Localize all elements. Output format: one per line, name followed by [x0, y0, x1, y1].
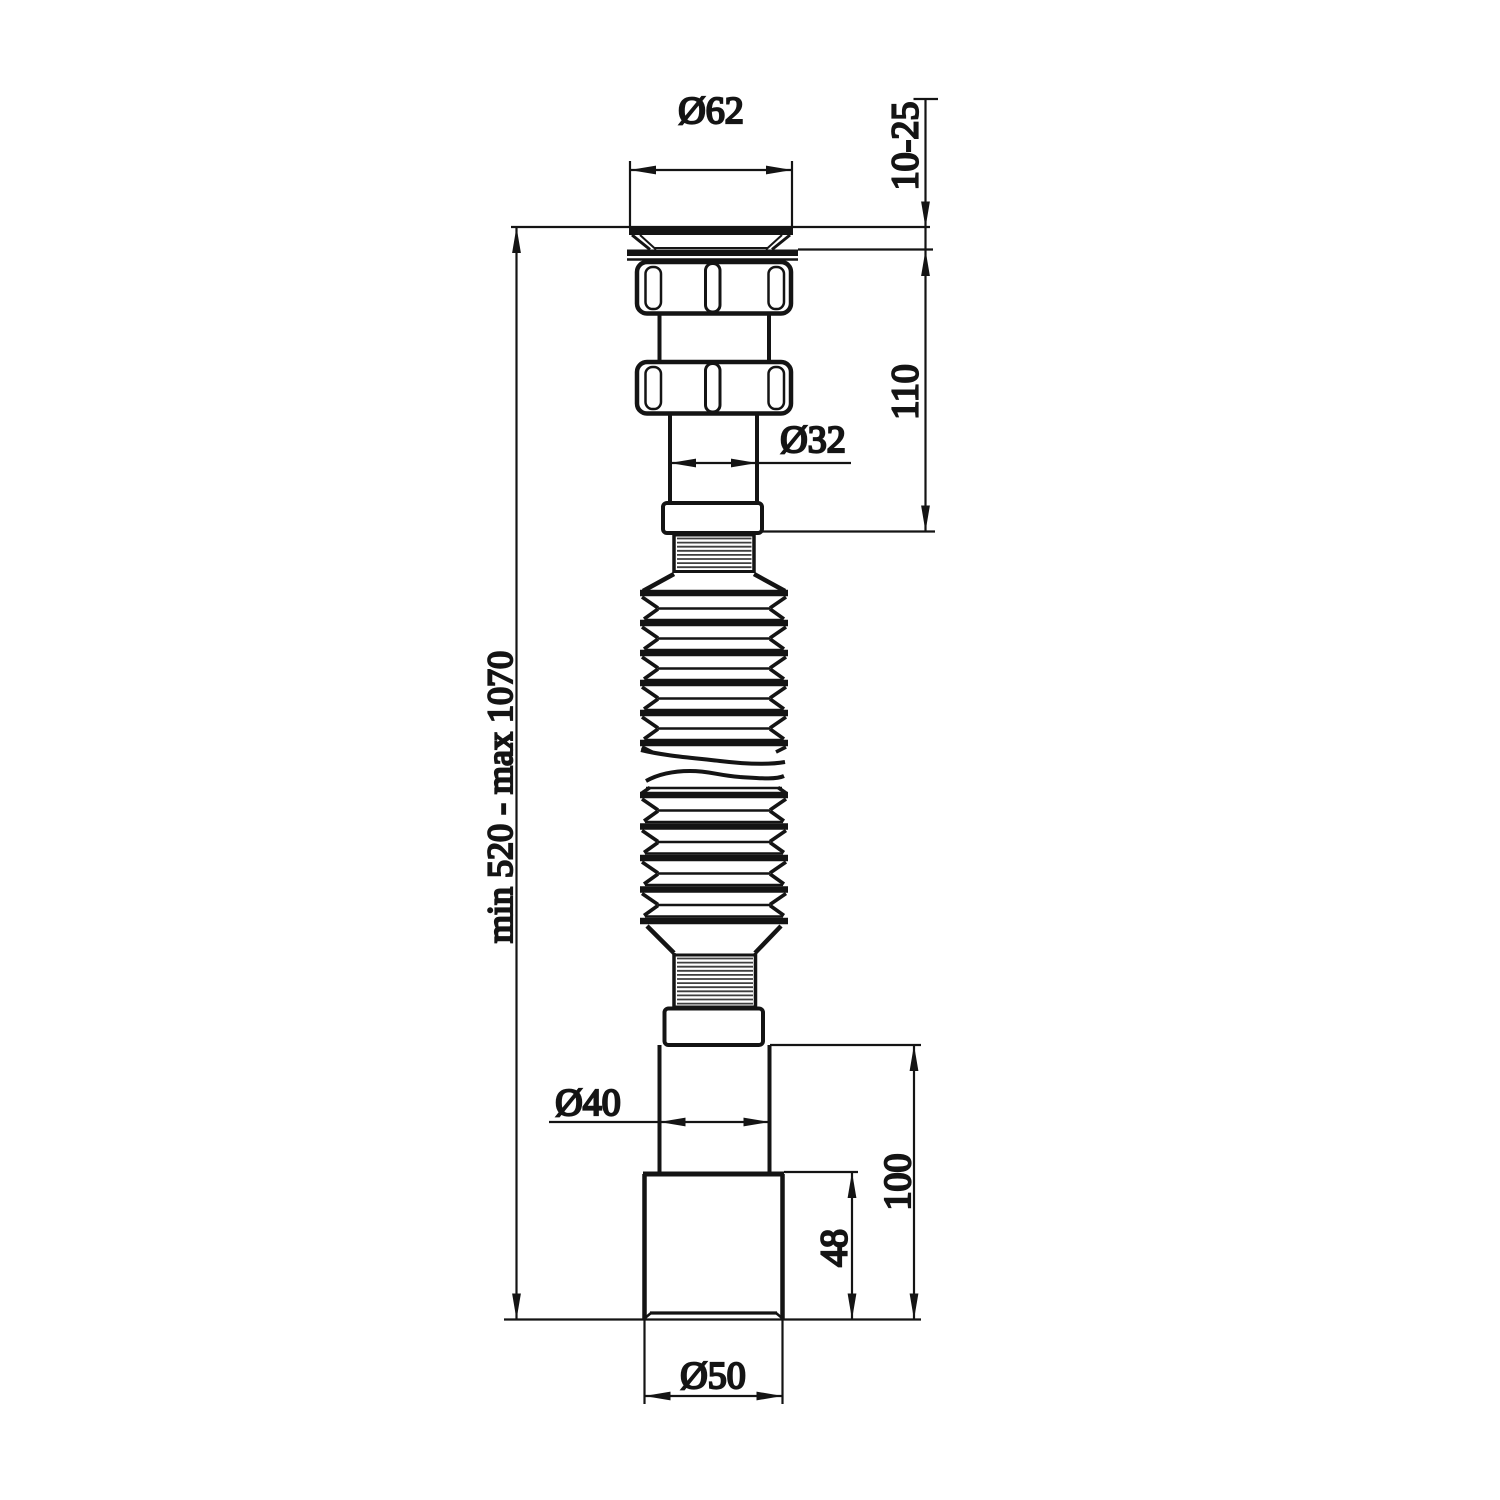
arrowhead-right	[766, 166, 792, 175]
upper-hose-socket	[663, 503, 762, 533]
arrowhead-up	[910, 1045, 919, 1071]
arrowhead-left	[645, 1392, 671, 1401]
flange-diameter-label: Ø62	[678, 90, 743, 132]
inlet-section-height-label: 110	[885, 364, 927, 420]
arrowhead-right	[744, 1118, 770, 1127]
upper-flare	[643, 574, 785, 591]
cup-diameter-label: Ø50	[680, 1355, 745, 1397]
arrowhead-right	[757, 1392, 783, 1401]
upper-threaded-section	[674, 533, 754, 573]
upper-union-nut	[637, 262, 791, 314]
outlet-pipe-diameter-label: Ø40	[555, 1082, 620, 1124]
technical-drawing-canvas: min 520 - max 1070 Ø62 10-25 110 Ø32 Ø40	[0, 0, 1500, 1500]
arrowhead-left	[660, 1118, 686, 1127]
sink-flange	[629, 232, 793, 250]
arrowhead-down	[512, 1294, 521, 1320]
lower-hose-socket	[665, 1009, 764, 1046]
arrowhead-up	[921, 250, 930, 276]
arrowhead-down	[921, 202, 930, 228]
lower-taper	[647, 926, 781, 953]
corrugated-hose-lower	[640, 788, 788, 922]
drain-pipe-drawing: min 520 - max 1070 Ø62 10-25 110 Ø32 Ø40	[0, 0, 1500, 1500]
outlet-pipe	[660, 1045, 770, 1172]
corrugated-hose-upper	[640, 593, 788, 752]
lower-union-nut	[637, 362, 791, 414]
dim-cup-diameter: Ø50	[645, 1320, 783, 1404]
dim-installation-thickness: 10-25	[798, 99, 938, 532]
nut-connector-body	[660, 314, 770, 363]
arrowhead-up	[512, 227, 521, 253]
dim-flange-diameter: Ø62	[630, 90, 792, 226]
arrowhead-down	[921, 506, 930, 532]
dim-inlet-pipe-diameter: Ø32	[670, 419, 851, 467]
arrowhead-right	[731, 459, 757, 468]
break-symbol	[641, 750, 785, 781]
outlet-section-height-label: 100	[877, 1154, 919, 1211]
arrowhead-left	[670, 459, 696, 468]
dim-outlet-section-height: 100	[770, 1045, 921, 1320]
arrowhead-left	[630, 166, 656, 175]
outlet-cup	[643, 1174, 784, 1319]
installation-thickness-label: 10-25	[885, 102, 927, 191]
lower-threaded-section	[674, 953, 756, 1009]
arrowhead-up	[848, 1172, 857, 1198]
overall-length-label: min 520 - max 1070	[480, 651, 520, 943]
arrowhead-down	[910, 1294, 919, 1320]
inlet-pipe-diameter-label: Ø32	[780, 419, 845, 461]
flange-washer	[627, 250, 798, 260]
cup-height-label: 48	[814, 1229, 856, 1267]
arrowhead-down	[848, 1294, 857, 1320]
dim-cup-height: 48	[784, 1172, 858, 1320]
inlet-pipe	[670, 414, 757, 504]
